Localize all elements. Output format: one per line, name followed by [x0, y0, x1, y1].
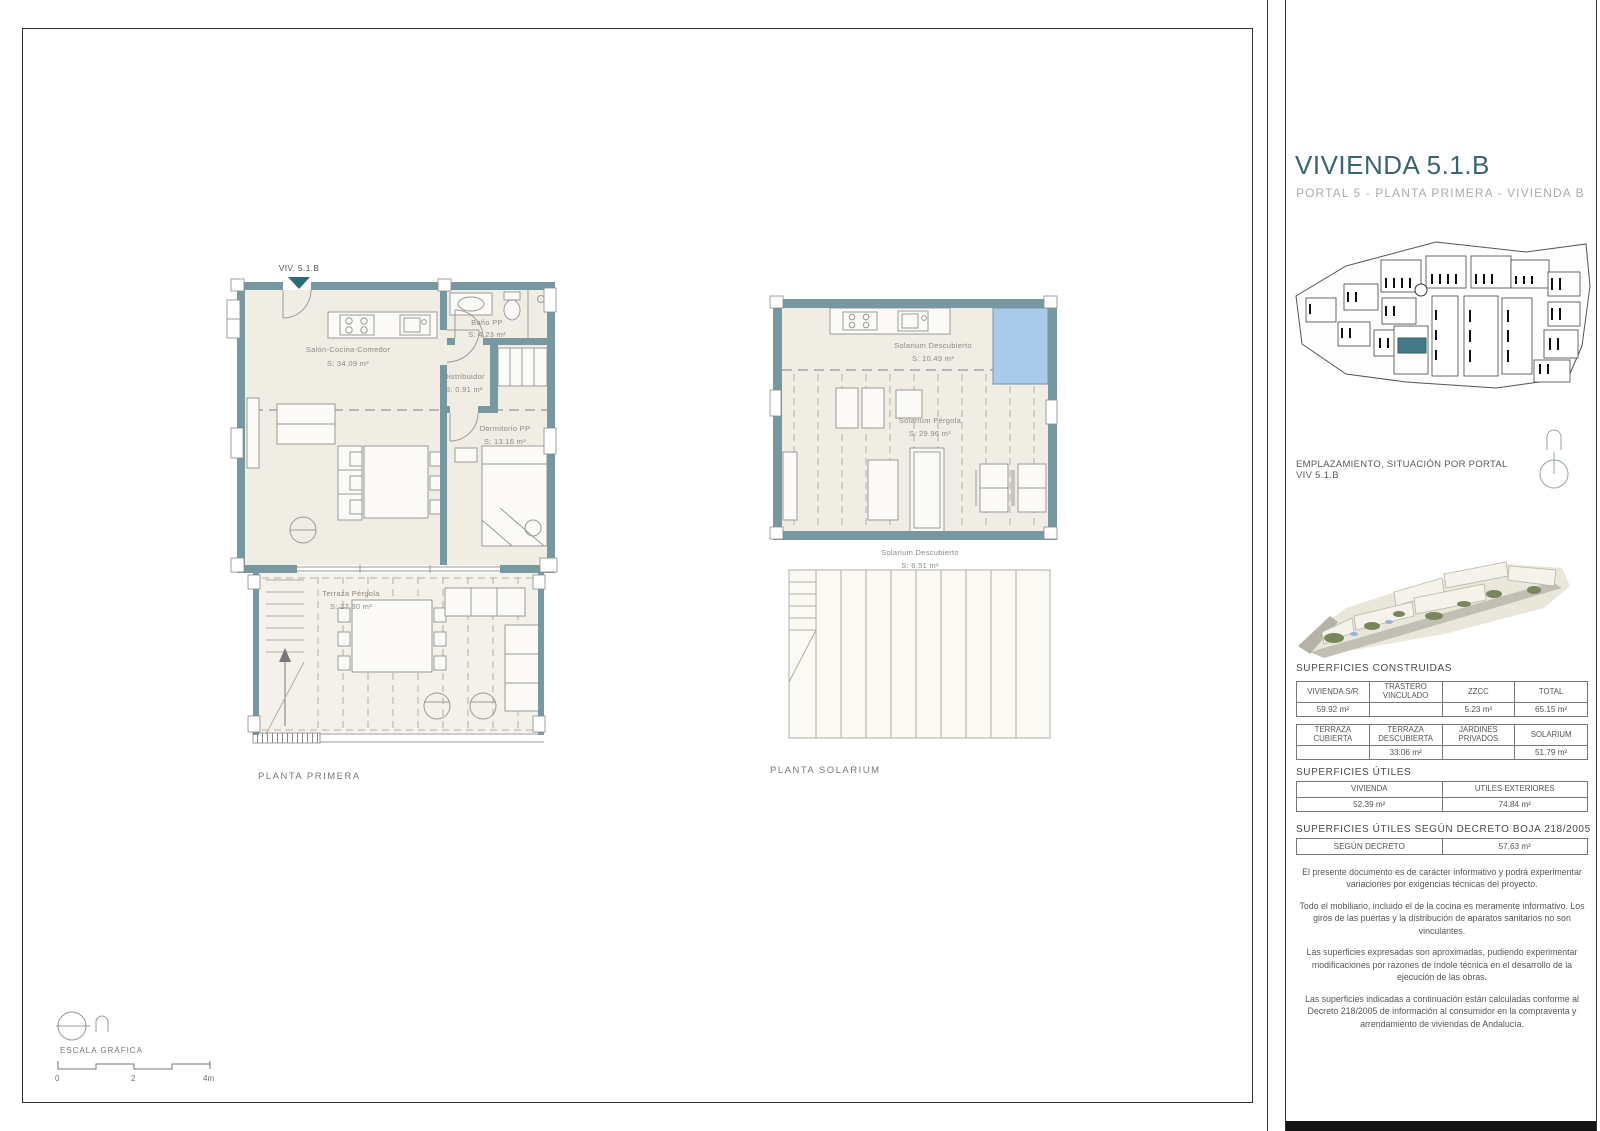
table-construidas-lower: TERRAZA CUBIERTA TERRAZA DESCUBIERTA JAR… [1296, 724, 1588, 760]
toilet-icon [504, 292, 520, 300]
note-paragraph: El presente documento es de carácter inf… [1296, 866, 1588, 891]
heading-superficies-construidas: SUPERFICIES CONSTRUIDAS [1296, 663, 1452, 674]
bed [482, 446, 547, 546]
table-value-cell: 52.39 m² [1297, 798, 1442, 811]
table-value-cell: 74.84 m² [1443, 798, 1588, 811]
room-area-solarium-descubierto-sup: S: 10.49 m² [912, 354, 954, 363]
solarium-counter [830, 308, 950, 334]
table-header-cell: UTILES EXTERIORES [1443, 782, 1588, 797]
graphic-scale-bar [58, 1061, 210, 1069]
room-label-terraza: Terraza Pérgola [322, 589, 380, 598]
planta-primera-plan: VIV. 5.1.B [227, 263, 557, 743]
room-area-terraza: S: 27.80 m² [330, 602, 372, 611]
table-header-cell: SOLARIUM [1515, 725, 1587, 745]
scale-tick-2: 2 [131, 1074, 136, 1083]
scale-block: ESCALA GRÁFICA 0 2 4m [55, 1012, 214, 1083]
room-area-bano: S: 4.23 m² [468, 330, 506, 339]
table-construidas-upper: VIVIENDA S/R TRASTERO VINCULADO ZZCC TOT… [1296, 681, 1588, 717]
terrace-sofa-2 [505, 625, 539, 711]
caption-planta-solarium: PLANTA SOLARIUM [770, 765, 881, 776]
table-header-cell: JARDINES PRIVADOS [1443, 725, 1515, 745]
room-label-dormitorio: Dormitorio PP [480, 424, 531, 433]
site-pool-icon [1415, 284, 1427, 296]
highlighted-unit [1398, 338, 1426, 353]
aerial-render-image [1294, 546, 1584, 660]
table-value-cell [1370, 703, 1442, 716]
room-area-salon: S: 34.09 m² [327, 359, 369, 368]
table-header-cell: VIVIENDA S/R [1297, 682, 1369, 702]
room-area-dormitorio: S: 13.16 m² [484, 437, 526, 446]
dining-table [364, 446, 428, 518]
terrace-sofa [445, 588, 525, 616]
room-label-distribuidor: Distribuidor [443, 372, 485, 381]
table-utiles: VIVIENDA UTILES EXTERIORES 52.39 m² 74.8… [1296, 781, 1588, 812]
table-value-cell: 59.92 m² [1297, 703, 1369, 716]
north-letter-glyph [96, 1016, 108, 1032]
entrance-marker-icon [288, 277, 310, 289]
room-label-bano: Baño PP [471, 318, 503, 327]
room-area-solarium-pergola: S: 29.96 m² [909, 429, 951, 438]
scale-tick-4m: 4m [203, 1074, 214, 1083]
room-label-solarium-descubierto-sup: Solarium Descubierto [894, 341, 972, 350]
table-value-cell: 57.63 m² [1443, 839, 1588, 854]
nightstand [455, 448, 477, 462]
note-paragraph: Las superficies expresadas son aproximad… [1296, 946, 1588, 983]
room-label-solarium-descubierto-inf: Solarium Descubierto [881, 548, 959, 557]
north-compass-icon [1532, 424, 1576, 500]
table-decreto: SEGÚN DECRETO 57.63 m² [1296, 838, 1588, 855]
table-label-cell: SEGÚN DECRETO [1297, 839, 1442, 854]
sliding-window [297, 565, 500, 573]
legal-notes: El presente documento es de carácter inf… [1296, 866, 1588, 1039]
room-area-distribuidor: S: 0.91 m² [445, 385, 483, 394]
table-header-cell: VIVIENDA [1297, 782, 1442, 797]
room-label-salon: Salón-Cocina-Comedor [306, 345, 391, 354]
emplazamiento-label: EMPLAZAMIENTO, SITUACIÓN POR PORTAL VIV … [1296, 459, 1526, 481]
room-area-solarium-descubierto-inf: S: 6.51 m² [901, 561, 939, 570]
room-label-solarium-pergola: Solarium Pérgola [899, 416, 962, 425]
caption-planta-primera: PLANTA PRIMERA [258, 771, 361, 782]
scale-tick-0: 0 [55, 1074, 60, 1083]
terrace-railing [320, 734, 544, 742]
planta-solarium-plan: Solarium Descubierto S: 10.49 m² Solariu… [770, 296, 1057, 738]
table-value-cell: 51.79 m² [1515, 746, 1587, 759]
table-header-cell: TRASTERO VINCULADO [1370, 682, 1442, 702]
table-value-cell: 5.23 m² [1443, 703, 1515, 716]
table-value-cell: 33.06 m² [1370, 746, 1442, 759]
panel-footer-bar [1286, 1121, 1596, 1131]
heading-superficies-decreto: SUPERFICIES ÚTILES SEGÚN DECRETO BOJA 21… [1296, 824, 1591, 835]
vanity-icon [450, 293, 492, 315]
note-paragraph: Las superficies indicadas a continuación… [1296, 993, 1588, 1030]
table-header-cell: ZZCC [1443, 682, 1515, 702]
tv-unit [247, 398, 259, 468]
table-header-cell: TERRAZA DESCUBIERTA [1370, 725, 1442, 745]
table-value-cell [1443, 746, 1515, 759]
table-value-cell: 65.15 m² [1515, 703, 1587, 716]
table-value-cell [1297, 746, 1369, 759]
note-paragraph: Todo el mobiliario, incluido el de la co… [1296, 900, 1588, 937]
sheet-title: VIVIENDA 5.1.B [1295, 150, 1490, 181]
unit-marker-label: VIV. 5.1.B [279, 263, 320, 273]
site-plan-drawing [1286, 226, 1598, 410]
lower-deck [789, 570, 1050, 738]
heading-superficies-utiles: SUPERFICIES ÚTILES [1296, 767, 1411, 778]
table-header-cell: TOTAL [1515, 682, 1587, 702]
terrace-hatch-strip [253, 733, 320, 743]
title-block-panel: VIVIENDA 5.1.B PORTAL 5 - PLANTA PRIMERA… [1285, 0, 1597, 1131]
sheet-subtitle: PORTAL 5 - PLANTA PRIMERA - VIVIENDA B [1296, 186, 1585, 200]
table-header-cell: TERRAZA CUBIERTA [1297, 725, 1369, 745]
door-gap [450, 405, 478, 414]
kitchen-counter [328, 312, 437, 338]
scale-label: ESCALA GRÁFICA [60, 1046, 143, 1055]
pool [993, 308, 1048, 384]
